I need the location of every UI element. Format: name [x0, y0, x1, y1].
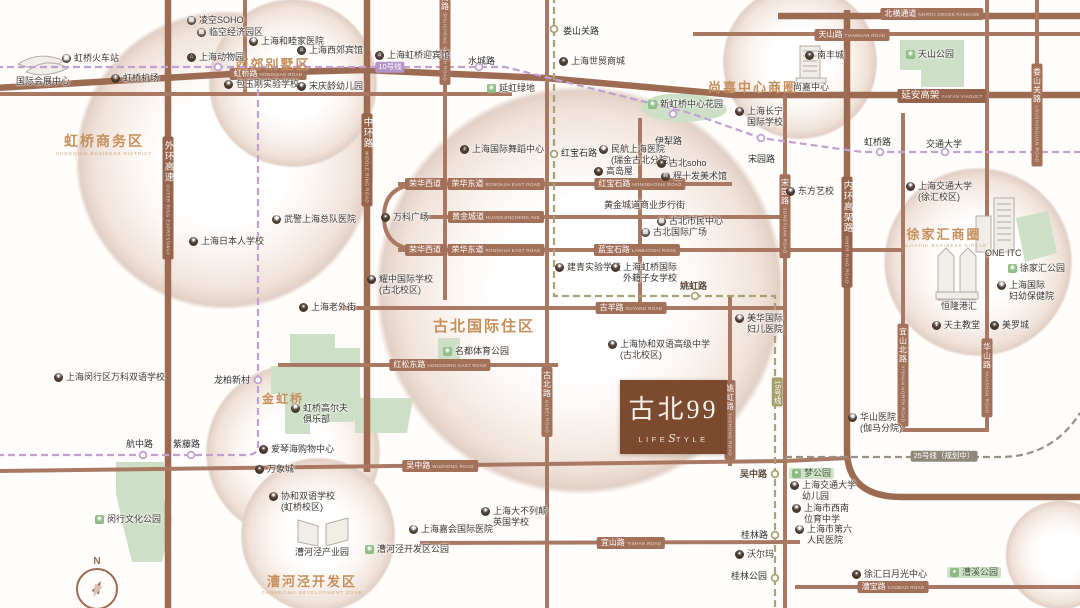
poi-label: ♠闵行文化公园 — [95, 514, 161, 525]
poi-text-line: 黄金城道商业步行街 — [604, 200, 685, 211]
road-tag-en: SONGYUAN ROAD — [783, 207, 788, 254]
poi-text-line: 闵行文化公园 — [107, 514, 161, 525]
district-label: 徐家汇商圈XUJIAHUI BUSINESS CIRCLE — [901, 224, 987, 248]
poi-text-line: 国际学校 — [747, 117, 783, 128]
district-label-cn: 尚嘉中心商圈 — [708, 80, 798, 95]
road-tag-cn: 宜山北路 — [899, 328, 908, 364]
poi-label: ✦协和双语学校(虹桥校区) — [269, 491, 335, 512]
station-label: 紫藤路 — [173, 437, 200, 450]
airport-icon: ✈ — [111, 74, 120, 83]
poi-label: ▪万科广场 — [381, 212, 429, 223]
school-icon: ✦ — [611, 263, 620, 272]
poi-text-line: 俱乐部 — [303, 414, 348, 425]
map-canvas: 古北99 LIFESTYLE N 虹桥路HONGQIAO ROAD北横通道NOR… — [0, 0, 1080, 608]
poi-text: 包玉刚实验学校 — [236, 79, 299, 90]
poi-label: ▪上海世贸商城 — [559, 56, 625, 67]
poi-text-line: 爱琴海购物中心 — [271, 444, 334, 455]
hospital-icon: ✚ — [795, 525, 804, 534]
poi-text: 上海大不列颠英国学校 — [493, 506, 547, 527]
mall-icon: ▪ — [559, 57, 568, 66]
poi-text-line: 徐家汇公园 — [1020, 263, 1065, 274]
poi-label: 国际会展中心 — [16, 76, 70, 87]
road-tag-en: MIDDLE RING ROAD — [365, 151, 370, 203]
poi-text-line: (徐汇校区) — [918, 192, 972, 203]
poi-text-line: 上海交通大学 — [918, 181, 972, 192]
poi-text: 上海市第六人民医院 — [807, 524, 852, 545]
road-tag-cn: 蓝宝石路 — [598, 245, 630, 254]
poi-text: 闵行文化公园 — [107, 514, 161, 525]
metro-station-marker — [772, 471, 779, 478]
road-tag-en: TIANSHAN ROAD — [845, 33, 886, 38]
road-tag-cn: 中环路 — [362, 117, 373, 149]
metro-line-tag: 25号线（规划中） — [911, 451, 978, 462]
poi-text-line: 程十发美术馆 — [673, 171, 727, 182]
poi-label: ▪古北soho — [657, 158, 707, 169]
poi-label: Π程十发美术馆 — [661, 171, 727, 182]
poi-text-line: 妇儿医院 — [747, 324, 783, 335]
metro-station-marker — [877, 149, 884, 156]
poi-text: ONE ITC — [985, 248, 1022, 259]
poi-label: ▣虹桥火车站 — [62, 53, 119, 64]
poi-label: ✦上海交通大学幼儿园 — [790, 480, 856, 501]
poi-text-line: 上海嘉会国际医院 — [421, 524, 493, 535]
poi-text-line: 沃尔玛 — [747, 549, 774, 560]
poi-text-line: 国际会展中心 — [16, 76, 70, 87]
henglong-towers-sketch — [936, 292, 978, 299]
poi-label: ♠新虹桥中心花园 — [648, 99, 723, 110]
road-tag-cn: 宜山路 — [601, 538, 625, 547]
poi-text: 上海动物园 — [199, 52, 244, 63]
poi-text: 武警上海总队医院 — [284, 214, 356, 225]
poi-label: ▪沃尔玛 — [735, 549, 774, 560]
poi-text: 美华国际妇儿医院 — [747, 313, 783, 334]
poi-label: ONE ITC — [985, 248, 1022, 259]
road-tag: 娄山关路LOUSHANGUAN ROAD — [1032, 63, 1043, 166]
poi-text-line: 耀中国际学校 — [379, 274, 433, 285]
school-icon: ✦ — [481, 507, 490, 516]
road-tag-cn: 红松东路 — [393, 360, 425, 369]
road-tag: 吴中路WUZHONG ROAD — [402, 460, 478, 472]
road-tag-cn: 荣华东道 — [451, 245, 483, 254]
poi-label: ▪徐汇日月光中心 — [852, 569, 927, 580]
road-tag-cn: 黄金城道 — [452, 212, 484, 221]
poi-text: 恒隆港汇 — [941, 301, 977, 312]
park-icon: ♠ — [950, 568, 959, 577]
dance-icon: ♪ — [460, 145, 469, 154]
poi-text: 华山医院(伽马分院) — [860, 412, 902, 433]
poi-label: ♠天山公园 — [906, 49, 954, 60]
poi-text-line: 美罗城 — [1002, 320, 1029, 331]
poi-text-line: (虹桥校区) — [281, 502, 335, 513]
poi-text-line: 上海国际舞蹈中心 — [472, 144, 544, 155]
metro-station-marker — [255, 377, 262, 384]
poi-text-line: 高岛屋 — [606, 166, 633, 177]
park-icon: ♠ — [95, 515, 104, 524]
station-label: 交通大学 — [926, 137, 962, 150]
poi-label: ✚上海国际妇幼保健院 — [997, 280, 1054, 301]
station-label: 桂林路 — [741, 528, 768, 541]
poi-text: 古北市民中心 — [669, 216, 723, 227]
poi-label: 恒隆港汇 — [941, 301, 977, 312]
poi-label: ⌂上海西郊宾馆 — [297, 45, 363, 56]
poi-text: 上海国际妇幼保健院 — [1009, 280, 1054, 301]
train-station-icon: ▣ — [62, 54, 71, 63]
station-label: 红宝石路 — [561, 146, 597, 159]
station-label: 宋园路 — [748, 152, 775, 165]
museum-icon: Π — [661, 172, 670, 181]
poi-label: ♠延虹绿地 — [487, 83, 535, 94]
one-itc-sketch — [994, 198, 1014, 252]
school-icon: ✦ — [790, 481, 799, 490]
school-icon: ✦ — [555, 263, 564, 272]
poi-text-line: 上海大不列颠 — [493, 506, 547, 517]
road-tag: 红松东路HONGSONG EAST ROAD — [389, 359, 490, 371]
road-tag-cn: 吴中路 — [406, 461, 430, 470]
caohejing-park-sketch — [326, 518, 348, 546]
logo-title: 古北99 — [620, 389, 727, 426]
poi-text: 上海世贸商城 — [571, 56, 625, 67]
road-tag: 蓝宝石路LANBAOSHI ROAD — [594, 244, 680, 256]
poi-label: ▪美罗城 — [990, 320, 1029, 331]
metro-station-marker — [758, 135, 765, 142]
hospital-icon: ✚ — [249, 37, 258, 46]
poi-text-line: (古北校区) — [379, 285, 433, 296]
poi-text-line: 上海市第六 — [807, 524, 852, 535]
road-tag: 荣华东道RONGHUA EAST ROAD — [447, 178, 544, 190]
road-tag-en: SHUICHENG SOUTH ROAD — [443, 13, 448, 81]
poi-label: ▪南丰城 — [805, 50, 844, 61]
poi-text: 上海虹桥迎宾馆 — [387, 50, 450, 61]
school-icon: ✦ — [792, 504, 801, 513]
road-tag-cn: 荣华西道 — [409, 179, 441, 188]
poi-text: 延虹绿地 — [499, 83, 535, 94]
poi-text-line: 上海动物园 — [199, 52, 244, 63]
district-label: 虹桥商务区HONGQIAO BUSINESS DISTRICT — [56, 131, 153, 156]
poi-text: 古北国际广场 — [653, 227, 707, 238]
metro-station-marker — [551, 151, 558, 158]
poi-text: 名都体育公园 — [455, 346, 509, 357]
school-icon: ✦ — [786, 187, 795, 196]
poi-text-line: 万象城 — [267, 464, 294, 475]
metro-line-tag: 10号线 — [375, 62, 404, 73]
poi-text-line: 上海市西南 — [804, 503, 849, 514]
poi-text: 上海西郊宾馆 — [309, 45, 363, 56]
park-icon: ♠ — [487, 84, 496, 93]
poi-text-line: 美华国际 — [747, 313, 783, 324]
road-tag: 荣华东道RONGHUA EAST ROAD — [447, 244, 544, 256]
school-icon: ✦ — [54, 373, 63, 382]
district-label: 漕河泾开发区CAOHEJING DEVELOPMENT ZONE — [261, 571, 362, 595]
poi-text: 上海国际舞蹈中心 — [472, 144, 544, 155]
poi-text-line: 上海闵行区万科双语学校 — [66, 372, 165, 383]
poi-label: ▪万象城 — [255, 464, 294, 475]
poi-text-line: 上海虹桥国际 — [623, 262, 677, 273]
hotel-icon: ⌂ — [297, 46, 306, 55]
poi-text-line: 徐汇日月光中心 — [864, 569, 927, 580]
hotel-icon: ⌂ — [375, 51, 384, 60]
road-tag-en: RONGHUA EAST ROAD — [485, 182, 540, 187]
poi-label: ✚武警上海总队医院 — [272, 214, 356, 225]
poi-text: 美罗城 — [1002, 320, 1029, 331]
road-tag-en: YAOHONG ROAD — [728, 413, 733, 456]
poi-text-line: 协和双语学校 — [281, 491, 335, 502]
poi-text-line: 上海老外街 — [311, 302, 356, 313]
poi-text-line: 虹桥高尔夫 — [303, 403, 348, 414]
compass-icon: N — [76, 568, 118, 608]
station-label: 航中路 — [126, 437, 153, 450]
poi-label: ✝天主教堂 — [932, 320, 980, 331]
poi-label: ∴上海动物园 — [187, 52, 244, 63]
metro-station-marker — [215, 64, 222, 71]
station-label: 龙柏新村 — [214, 373, 250, 386]
poi-text-line: 上海日本人学校 — [201, 236, 264, 247]
poi-text-line: 上海长宁 — [747, 106, 783, 117]
poi-text-line: 华山医院 — [860, 412, 902, 423]
station-label: 娄山关路 — [563, 24, 599, 37]
poi-text-line: 上海虹桥迎宾馆 — [387, 50, 450, 61]
station-label: 吴中路 — [740, 467, 767, 480]
xujiahui-park — [1016, 211, 1057, 262]
poi-label: ⌂上海虹桥迎宾馆 — [375, 50, 450, 61]
poi-label: ▤古北市民中心 — [657, 216, 723, 227]
road-tag-en: LANBAOSHI ROAD — [632, 248, 676, 253]
hospital-icon: ✚ — [735, 314, 744, 323]
hospital-icon: ✚ — [599, 145, 608, 154]
road-tag-en: GUBEI ROAD — [545, 400, 550, 433]
poi-text-line: 漕河泾开发区公园 — [377, 544, 449, 555]
metro-station-marker — [188, 452, 195, 459]
poi-text-line: 外籍子女学校 — [623, 273, 677, 284]
poi-text: 爱琴海购物中心 — [271, 444, 334, 455]
poi-text: 尚嘉中心 — [793, 82, 829, 93]
poi-label: ♠名都体育公园 — [443, 346, 509, 357]
poi-text: 上海交通大学幼儿园 — [802, 480, 856, 501]
road-tag: 中环路MIDDLE RING ROAD — [362, 113, 373, 206]
school-icon: ✦ — [297, 82, 306, 91]
poi-label: ⚑虹桥高尔夫俱乐部 — [291, 403, 348, 424]
poi-text-line: 上海世贸商城 — [571, 56, 625, 67]
school-icon: ✦ — [735, 107, 744, 116]
poi-text-line: 英国学校 — [493, 517, 547, 528]
road-tag: 水城南路SHUICHENG SOUTH ROAD — [440, 0, 451, 85]
compass-needle — [88, 576, 106, 603]
poi-label: ♠漕溪公园 — [947, 567, 1001, 578]
poi-text: 天主教堂 — [944, 320, 980, 331]
poi-text-line: 南丰城 — [817, 50, 844, 61]
building-icon: ▤ — [187, 16, 196, 25]
mall-icon: ▪ — [381, 213, 390, 222]
road-tag-cn: 北横通道 — [884, 9, 916, 18]
poi-label: ♠漕河泾开发区公园 — [365, 544, 449, 555]
metro-station-marker — [670, 111, 677, 118]
poi-text: 高岛屋 — [606, 166, 633, 177]
poi-text: 虹桥火车站 — [74, 53, 119, 64]
road-tag-en: HUASHAN ROAD — [985, 371, 990, 413]
mall-icon: ▪ — [852, 570, 861, 579]
poi-text: 上海虹桥国际外籍子女学校 — [623, 262, 677, 283]
building-icon: ▤ — [657, 217, 666, 226]
district-label-en: HONGQIAO BUSINESS DISTRICT — [56, 151, 153, 156]
park-icon: ♠ — [792, 469, 801, 478]
poi-text-line: 妇幼保健院 — [1009, 291, 1054, 302]
road-tag: 宜山路YISHAN ROAD — [597, 537, 665, 549]
road-tag: 宜山北路YISHAN NORTH ROAD — [898, 324, 909, 427]
poi-text-line: 漕溪公园 — [962, 567, 998, 578]
district-label-cn: 古北国际住区 — [433, 318, 535, 335]
district-label-cn: 虹桥商务区 — [64, 133, 144, 149]
road-tag: 内环高架路INNER RING ROAD — [842, 177, 853, 288]
poi-text: 虹桥机场 — [123, 73, 159, 84]
station-label: 虹桥路 — [864, 135, 891, 148]
church-icon: ✝ — [932, 321, 941, 330]
road-tag: 漕宝路CAOBAO ROAD — [858, 581, 929, 593]
poi-label: ♠徐家汇公园 — [1008, 263, 1065, 274]
building-icon: ▤ — [197, 28, 206, 37]
road-tag: 古北路GUBEI ROAD — [542, 367, 553, 437]
poi-text: 漕河泾开发区公园 — [377, 544, 449, 555]
mall-icon: ▪ — [594, 167, 603, 176]
metro-station-marker — [140, 452, 147, 459]
road-tag: 古羊路GUYANG ROAD — [596, 302, 667, 314]
poi-label: 漕河泾产业园 — [295, 547, 349, 558]
poi-label: ▤凌空SOHO — [187, 15, 244, 26]
poi-label: ✦上海日本人学校 — [189, 236, 264, 247]
road-tag-cn: 荣华西道 — [409, 245, 441, 254]
road-tag: 荣华西道 — [405, 178, 447, 190]
district-label-en: XUJIAHUI BUSINESS CIRCLE — [901, 243, 987, 248]
poi-label: ▪高岛屋 — [594, 166, 633, 177]
road-tag-en: RONGHUA EAST ROAD — [485, 248, 540, 253]
hospital-icon: ✚ — [997, 281, 1006, 290]
poi-text: 耀中国际学校(古北校区) — [379, 274, 433, 295]
poi-text-line: 虹桥火车站 — [74, 53, 119, 64]
poi-text: 凌空SOHO — [199, 15, 244, 26]
building-icon: ▤ — [641, 228, 650, 237]
poi-label: ✦上海虹桥国际外籍子女学校 — [611, 262, 677, 283]
hospital-icon: ✚ — [272, 215, 281, 224]
road-tag: 黄金城道HUANGJINCHENG AVE — [448, 211, 544, 223]
golf-green-east — [355, 398, 413, 433]
minhang-culture-park — [116, 462, 172, 562]
road-tag: 延安高架YAN'AN VIADUCT — [897, 89, 986, 103]
poi-text-line: 位育中学 — [804, 514, 849, 525]
poi-label: ♪上海国际舞蹈中心 — [460, 144, 544, 155]
poi-text: 上海日本人学校 — [201, 236, 264, 247]
poi-text-line: 凌空SOHO — [199, 15, 244, 26]
poi-label: ✦上海交通大学(徐汇校区) — [906, 181, 972, 202]
poi-label: ✦东方艺校 — [786, 186, 834, 197]
poi-text-line: 延虹绿地 — [499, 83, 535, 94]
poi-text: 漕溪公园 — [962, 567, 998, 578]
road-tag-en: OUTER RING EXPRESSWAY — [166, 184, 171, 255]
caohejing-park-sketch — [298, 520, 318, 546]
mall-icon: ▪ — [805, 51, 814, 60]
poi-text: 黄金城道商业步行街 — [604, 200, 685, 211]
poi-text-line: 虹桥机场 — [123, 73, 159, 84]
poi-text-line: 古北国际广场 — [653, 227, 707, 238]
road-tag-cn: 古羊路 — [600, 303, 624, 312]
poi-text-line: 新虹桥中心花园 — [660, 99, 723, 110]
metro-station-marker — [772, 575, 779, 582]
poi-label: ✦上海闵行区万科双语学校 — [54, 372, 165, 383]
road-tag: 北横通道NORTH CROSS PASSAGE — [880, 8, 983, 20]
poi-text-line: 上海西郊宾馆 — [309, 45, 363, 56]
poi-text: 协和双语学校(虹桥校区) — [281, 491, 335, 512]
road-tag-cn: 荣华东道 — [451, 179, 483, 188]
poi-text: 徐汇日月光中心 — [864, 569, 927, 580]
poi-text: 东方艺校 — [798, 186, 834, 197]
district-label-en: CAOHEJING DEVELOPMENT ZONE — [261, 590, 362, 595]
school-icon: ✦ — [367, 275, 376, 284]
poi-text-line: 尚嘉中心 — [793, 82, 829, 93]
poi-text-line: 宋庆龄幼儿园 — [309, 81, 363, 92]
poi-text-line: 民航上海医院 — [611, 144, 671, 155]
poi-label: ✚上海市第六人民医院 — [795, 524, 852, 545]
poi-text-line: 梦公园 — [804, 468, 831, 479]
road-tag-cn: 延安高架 — [901, 90, 939, 101]
poi-text-line: 漕河泾产业园 — [295, 547, 349, 558]
road-tag-cn: 华山路 — [983, 342, 992, 369]
road-tag-cn: 外环高速 — [163, 140, 174, 182]
road-tag-en: INNER RING ROAD — [845, 235, 850, 283]
road-tag-cn: 古北路 — [543, 371, 552, 398]
school-icon: ✦ — [269, 492, 278, 501]
poi-text-line: 万科广场 — [393, 212, 429, 223]
poi-text: 梦公园 — [804, 468, 831, 479]
poi-text-line: 包玉刚实验学校 — [236, 79, 299, 90]
poi-text: 上海交通大学(徐汇校区) — [918, 181, 972, 202]
poi-label: ✦宋庆龄幼儿园 — [297, 81, 363, 92]
park-icon: ♠ — [906, 50, 915, 59]
road-tag-en: WUZHONG ROAD — [432, 464, 474, 469]
poi-text: 宋庆龄幼儿园 — [309, 81, 363, 92]
road-tag-en: HUANGJINCHENG AVE — [486, 215, 540, 220]
gubei99-logo: 古北99 LIFESTYLE — [620, 380, 727, 454]
district-label: 西郊别墅区 — [235, 54, 310, 73]
poi-label: ✚华山医院(伽马分院) — [848, 412, 902, 433]
road-tag-cn: 红宝石路 — [598, 179, 630, 188]
logo-subtitle: LIFESTYLE — [620, 432, 727, 445]
poi-label: ✦上海协和双语高级中学(古北校区) — [608, 339, 710, 360]
hospital-icon: ✚ — [848, 413, 857, 422]
district-label-cn: 漕河泾开发区 — [267, 574, 357, 589]
road-tag: 华山路HUASHAN ROAD — [982, 338, 993, 417]
poi-text: 南丰城 — [817, 50, 844, 61]
road-tag: 外环高速OUTER RING EXPRESSWAY — [163, 136, 174, 259]
poi-label: ✚上海嘉会国际医院 — [409, 524, 493, 535]
poi-text-line: 古北市民中心 — [669, 216, 723, 227]
poi-text-line: 东方艺校 — [798, 186, 834, 197]
station-label: 桂林公园 — [731, 569, 767, 582]
park-icon: ♠ — [648, 100, 657, 109]
poi-label: ▤古北国际广场 — [641, 227, 707, 238]
poi-text: 上海闵行区万科双语学校 — [66, 372, 165, 383]
road-tag: 天山路TIANSHAN ROAD — [815, 29, 890, 41]
swan-icon: S — [668, 432, 676, 445]
school-icon: ✦ — [224, 80, 233, 89]
station-label: 水城路 — [468, 54, 495, 67]
poi-text: 程十发美术馆 — [673, 171, 727, 182]
mall-icon: ▪ — [299, 303, 308, 312]
poi-text-line: 上海协和双语高级中学 — [620, 339, 710, 350]
poi-text: 漕河泾产业园 — [295, 547, 349, 558]
metro-station-marker — [692, 293, 699, 300]
poi-text: 国际会展中心 — [16, 76, 70, 87]
district-label-cn: 西郊别墅区 — [235, 57, 310, 72]
station-label: 姚虹路 — [680, 279, 707, 292]
poi-text: 上海市西南位育中学 — [804, 503, 849, 524]
poi-text-line: 幼儿园 — [802, 491, 856, 502]
